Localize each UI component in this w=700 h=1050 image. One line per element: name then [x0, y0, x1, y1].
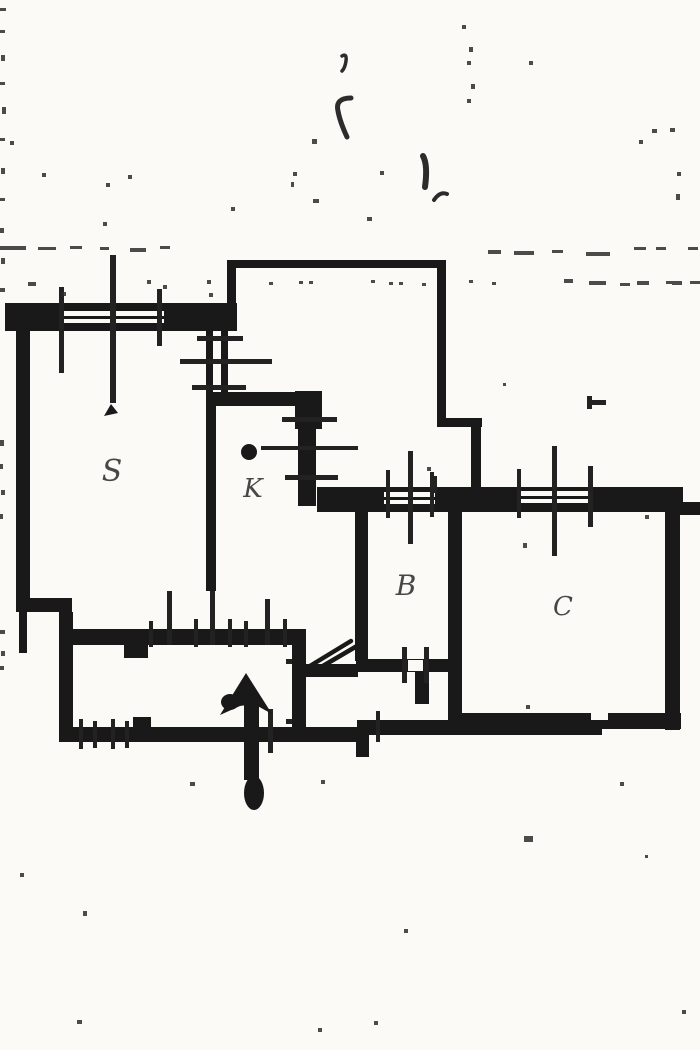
- scan-noise-speck: [70, 246, 82, 249]
- opening-tick: [282, 417, 337, 422]
- opening-tick: [592, 400, 606, 405]
- wall: [292, 629, 306, 742]
- scan-noise-speck: [42, 173, 46, 177]
- scan-noise-speck: [1, 258, 5, 264]
- scan-noise-speck: [0, 464, 3, 469]
- scan-noise-speck: [529, 61, 533, 65]
- wall: [677, 502, 700, 515]
- window-mullion-tip: [104, 404, 118, 416]
- opening-tick: [261, 446, 358, 450]
- scan-noise-speck: [637, 281, 649, 285]
- opening-tick: [59, 287, 64, 373]
- floor-plan: SKBC: [0, 0, 700, 1050]
- scanned-floorplan-page: SKBC: [0, 0, 700, 1050]
- opening-tick: [157, 289, 162, 346]
- opening-tick: [286, 659, 292, 664]
- scan-noise-speck: [634, 247, 646, 250]
- scan-noise-speck: [371, 280, 375, 283]
- wall: [66, 629, 297, 645]
- scan-noise-speck: [0, 30, 5, 33]
- scan-noise-speck: [656, 247, 666, 250]
- scan-noise-speck: [38, 247, 56, 250]
- opening-tick: [517, 469, 521, 518]
- scan-noise-speck: [688, 247, 698, 250]
- opening-tick: [265, 599, 270, 645]
- room-label-s: S: [102, 454, 123, 489]
- terrace-wall: [227, 260, 236, 306]
- scan-noise-speck: [2, 107, 6, 114]
- scan-noise-speck: [0, 288, 5, 292]
- scan-noise-speck: [682, 1010, 686, 1014]
- room-label-k: K: [242, 474, 264, 504]
- scan-noise-speck: [462, 25, 466, 29]
- scan-noise-speck: [0, 8, 6, 11]
- window-opening: [408, 660, 423, 671]
- scan-noise-speck: [503, 383, 506, 386]
- scan-noise-speck: [404, 929, 408, 933]
- scan-noise-speck: [469, 47, 473, 52]
- scan-noise-speck: [100, 247, 109, 250]
- scan-noise-speck: [690, 281, 700, 284]
- entrance-arrow-tail: [244, 776, 264, 810]
- scan-noise-speck: [367, 217, 372, 221]
- scan-squiggle: [342, 55, 346, 71]
- scan-noise-speck: [77, 1020, 82, 1024]
- scan-noise-speck: [318, 1028, 322, 1032]
- scan-squiggle: [434, 193, 447, 200]
- scan-noise-speck: [0, 630, 5, 634]
- scan-noise-speck: [514, 251, 534, 255]
- opening-tick: [192, 385, 246, 390]
- scan-noise-speck: [467, 61, 471, 65]
- opening-tick: [111, 719, 115, 749]
- scan-noise-speck: [526, 705, 530, 709]
- wall: [298, 428, 316, 506]
- scan-noise-speck: [677, 172, 681, 176]
- entrance-arrow-head-blob: [221, 694, 239, 710]
- scan-noise-speck: [1, 490, 5, 495]
- opening-tick: [93, 721, 97, 748]
- scan-noise-speck: [190, 782, 195, 786]
- scan-noise-speck: [427, 467, 431, 471]
- scan-squiggle: [423, 156, 426, 187]
- opening-tick: [244, 621, 248, 647]
- scan-noise-speck: [321, 780, 325, 784]
- scan-noise-speck: [523, 543, 527, 548]
- scan-noise-speck: [374, 1021, 378, 1025]
- scan-noise-speck: [106, 183, 110, 187]
- wall: [124, 645, 148, 658]
- opening-tick: [424, 647, 429, 683]
- scan-noise-speck: [160, 246, 170, 249]
- scan-noise-speck: [652, 129, 657, 133]
- wall: [133, 717, 151, 729]
- opening-tick: [402, 647, 407, 683]
- opening-tick: [408, 451, 413, 544]
- wall: [295, 391, 322, 429]
- wall: [665, 509, 680, 730]
- scan-noise-speck: [0, 138, 5, 141]
- opening-tick: [283, 619, 287, 647]
- wall: [317, 487, 683, 512]
- scan-noise-speck: [645, 855, 648, 858]
- scan-noise-speck: [620, 782, 624, 786]
- scan-noise-speck: [422, 283, 426, 286]
- wall: [356, 733, 369, 757]
- opening-tick: [149, 621, 153, 647]
- opening-tick: [286, 719, 292, 724]
- opening-tick: [376, 711, 380, 742]
- scan-noise-speck: [128, 175, 132, 179]
- scan-noise-speck: [399, 282, 403, 285]
- scan-noise-speck: [666, 281, 672, 284]
- scan-noise-speck: [0, 440, 4, 446]
- scan-noise-speck: [676, 194, 680, 200]
- window-opening: [591, 713, 608, 720]
- wall: [16, 326, 30, 608]
- scan-noise-speck: [0, 198, 5, 201]
- scan-noise-speck: [488, 250, 501, 254]
- scan-noise-speck: [0, 666, 4, 670]
- opening-tick: [194, 619, 198, 647]
- wall: [206, 392, 307, 406]
- scan-noise-speck: [312, 139, 317, 144]
- scan-noise-speck: [130, 248, 146, 252]
- scan-noise-speck: [231, 207, 235, 211]
- scan-noise-speck: [209, 293, 213, 297]
- scan-noise-speck: [291, 182, 294, 187]
- scan-noise-speck: [0, 82, 5, 85]
- scan-noise-speck: [163, 285, 167, 289]
- opening-tick: [386, 470, 390, 518]
- opening-tick: [180, 359, 272, 364]
- scan-noise-speck: [492, 282, 496, 285]
- opening-tick: [79, 719, 83, 749]
- scan-noise-speck: [672, 281, 682, 285]
- wall: [19, 608, 27, 653]
- wall: [448, 505, 462, 731]
- scan-noise-speck: [469, 280, 473, 283]
- scan-noise-speck: [1, 168, 5, 174]
- scan-noise-speck: [467, 99, 471, 103]
- scan-noise-speck: [564, 279, 573, 283]
- opening-tick: [285, 475, 338, 480]
- opening-tick: [228, 619, 232, 647]
- room-label-b: B: [395, 569, 417, 602]
- scan-noise-speck: [1, 651, 5, 656]
- scan-noise-speck: [380, 171, 384, 175]
- scan-noise-speck: [586, 252, 610, 256]
- terrace-wall: [227, 260, 445, 268]
- scan-noise-speck: [147, 280, 151, 284]
- scan-noise-speck: [20, 873, 24, 877]
- scan-noise-speck: [639, 140, 643, 144]
- opening-tick: [268, 709, 273, 753]
- scan-noise-speck: [471, 84, 475, 89]
- entrance-arrow-shaft: [244, 702, 259, 780]
- scan-noise-speck: [645, 515, 649, 519]
- wall: [355, 505, 368, 661]
- opening-tick: [210, 591, 215, 645]
- opening-tick: [552, 446, 557, 556]
- opening-tick: [433, 476, 437, 493]
- scan-noise-speck: [0, 246, 26, 250]
- terrace-wall: [437, 260, 446, 425]
- scan-noise-speck: [62, 292, 66, 296]
- scan-noise-speck: [83, 911, 87, 916]
- scan-noise-speck: [670, 128, 675, 132]
- scan-noise-speck: [0, 514, 3, 519]
- scan-noise-speck: [620, 283, 630, 286]
- scan-noise-speck: [1, 55, 5, 61]
- scan-noise-speck: [309, 281, 313, 284]
- opening-tick: [110, 255, 116, 403]
- scan-squiggle: [338, 98, 351, 137]
- wall: [59, 727, 361, 742]
- scan-noise-speck: [313, 199, 319, 203]
- opening-tick: [167, 591, 172, 645]
- scan-noise-speck: [589, 281, 606, 285]
- opening-tick: [588, 466, 593, 527]
- wall: [206, 405, 216, 591]
- opening-tick: [197, 336, 243, 341]
- scan-noise-speck: [10, 141, 14, 145]
- opening-tick: [125, 721, 129, 748]
- ink-blob: [241, 444, 257, 460]
- scan-noise-speck: [299, 281, 303, 284]
- room-label-c: C: [553, 592, 573, 622]
- scan-noise-speck: [269, 282, 273, 285]
- wall: [455, 713, 681, 729]
- scan-noise-speck: [524, 836, 533, 842]
- opening-tick: [587, 396, 592, 409]
- scan-noise-speck: [293, 172, 297, 176]
- scan-noise-speck: [552, 250, 563, 253]
- scan-noise-speck: [0, 228, 4, 233]
- scan-noise-speck: [389, 282, 393, 285]
- scan-noise-speck: [28, 282, 36, 286]
- scan-noise-speck: [103, 222, 107, 226]
- scan-noise-speck: [207, 280, 211, 284]
- terrace-wall: [471, 418, 481, 492]
